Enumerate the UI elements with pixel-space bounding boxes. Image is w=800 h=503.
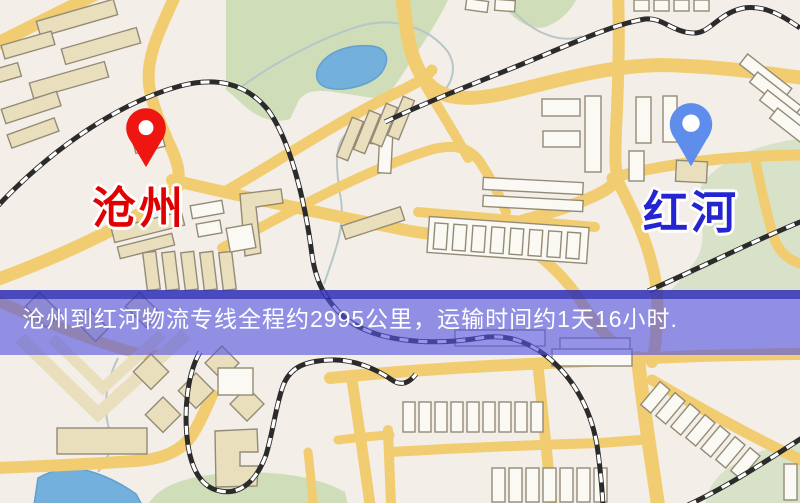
origin-city-label: 沧州 bbox=[92, 172, 186, 236]
building-squares-top bbox=[465, 0, 709, 12]
building-row-bottom-2 bbox=[492, 468, 607, 502]
base-map bbox=[0, 0, 800, 503]
origin-pin-icon bbox=[124, 103, 168, 173]
building-row-bottom-1 bbox=[403, 402, 543, 432]
building-block-top-left bbox=[0, 0, 141, 148]
destination-pin-icon bbox=[666, 102, 716, 168]
building-row-vertical bbox=[143, 251, 237, 290]
route-info-banner: 沧州到红河物流专线全程约2995公里，运输时间约1天16小时. bbox=[0, 290, 800, 355]
route-map-image: 沧州 红河 沧州到红河物流专线全程约2995公里，运输时间约1天16小时. bbox=[0, 0, 800, 503]
destination-marker bbox=[666, 102, 716, 168]
building-bar-bottom-left bbox=[57, 428, 147, 454]
water-bottom-left bbox=[34, 468, 142, 503]
origin-marker bbox=[124, 103, 168, 173]
banner-body: 沧州到红河物流专线全程约2995公里，运输时间约1天16小时. bbox=[0, 299, 800, 355]
route-info-text: 沧州到红河物流专线全程约2995公里，运输时间约1天16小时. bbox=[22, 306, 678, 332]
destination-city-label: 红河 bbox=[643, 176, 739, 241]
banner-top-edge bbox=[0, 290, 800, 299]
